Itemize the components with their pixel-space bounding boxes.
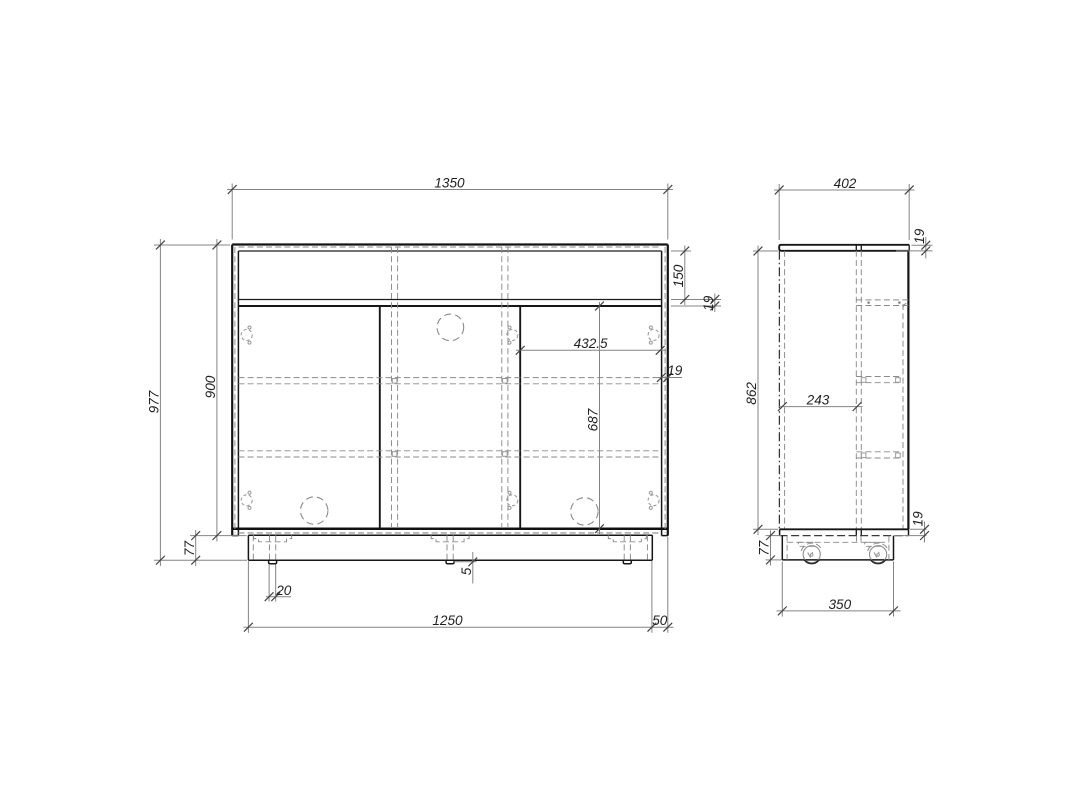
svg-text:150: 150 <box>671 264 686 287</box>
svg-text:19: 19 <box>911 511 926 527</box>
svg-text:1250: 1250 <box>432 613 463 628</box>
svg-text:977: 977 <box>147 390 162 413</box>
svg-text:77: 77 <box>757 540 772 556</box>
svg-text:687: 687 <box>586 408 601 431</box>
svg-text:77: 77 <box>182 541 197 557</box>
svg-text:402: 402 <box>834 176 857 191</box>
svg-text:862: 862 <box>744 382 759 405</box>
svg-text:50: 50 <box>652 613 668 628</box>
svg-text:19: 19 <box>912 228 927 244</box>
svg-text:19: 19 <box>667 363 683 378</box>
svg-text:20: 20 <box>275 583 292 598</box>
svg-text:243: 243 <box>806 392 830 407</box>
svg-text:1350: 1350 <box>434 175 465 190</box>
svg-text:350: 350 <box>828 597 851 612</box>
svg-text:432.5: 432.5 <box>574 336 608 351</box>
svg-text:5: 5 <box>459 567 474 575</box>
svg-text:900: 900 <box>203 375 218 398</box>
svg-text:19: 19 <box>701 295 716 311</box>
